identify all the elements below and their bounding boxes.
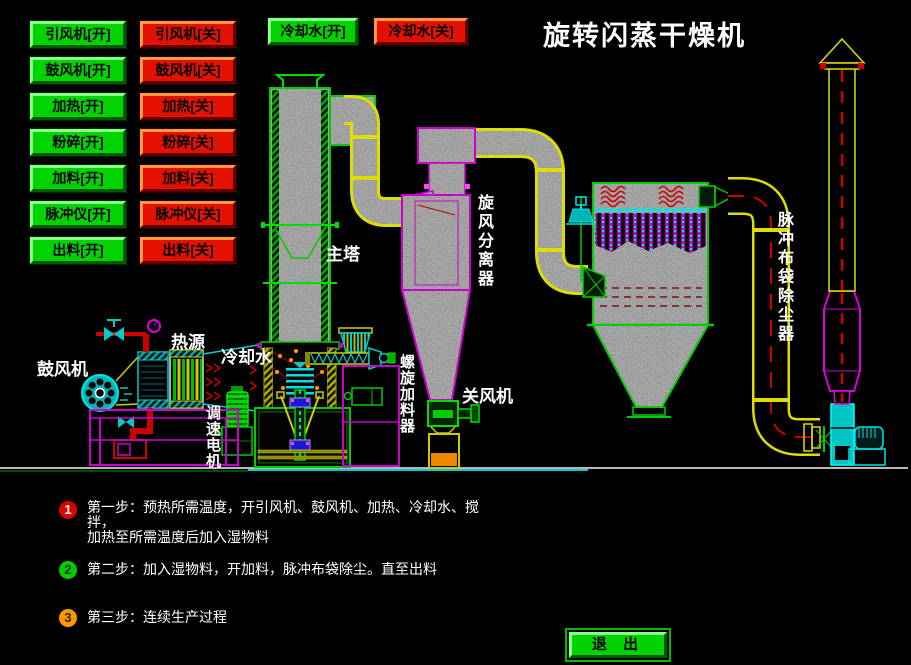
step-1-badge: 1 — [59, 501, 77, 519]
bag-filter-label: 脉冲布袋除尘器 — [778, 211, 796, 344]
heat-source-label: 热源 — [171, 328, 205, 353]
flash-dryer-scada-screen: 引风机[开] 鼓风机[开] 加热[开] 粉碎[开] 加料[开] 脉冲仪[开] 出… — [0, 0, 911, 665]
pulse-off-button[interactable]: 脉冲仪[关] — [140, 201, 236, 228]
blower-on-button[interactable]: 鼓风机[开] — [30, 57, 126, 84]
page-title: 旋转闪蒸干燥机 — [543, 14, 746, 53]
feed-on-button[interactable]: 加料[开] — [30, 165, 126, 192]
main-tower-label: 主塔 — [326, 240, 360, 265]
cooling-water-on-button[interactable]: 冷却水[开] — [268, 18, 358, 45]
exit-button[interactable]: 退 出 — [569, 632, 667, 658]
discharge-on-button[interactable]: 出料[开] — [30, 237, 126, 264]
cooling-water-label: 冷却水 — [221, 343, 272, 368]
crush-on-button[interactable]: 粉碎[开] — [30, 129, 126, 156]
speed-motor-label: 调速电机 — [206, 406, 222, 470]
blower-off-button[interactable]: 鼓风机[关] — [140, 57, 236, 84]
screw-feeder-label: 螺旋加料器 — [400, 355, 416, 435]
discharge-off-button[interactable]: 出料[关] — [140, 237, 236, 264]
cooling-water-box — [138, 352, 168, 408]
heat-source-box — [170, 350, 203, 408]
blower-fan-wheel — [82, 357, 138, 411]
step-3-badge: 3 — [59, 609, 77, 627]
collection-bin — [429, 434, 459, 468]
heat-on-button[interactable]: 加热[开] — [30, 93, 126, 120]
step-1-text: 第一步：预热所需温度，开引风机、鼓风机、加热、冷却水、搅拌， 加热至所需温度后加… — [87, 500, 485, 545]
muffler — [824, 291, 860, 404]
step-3-text: 第三步：连续生产过程 — [87, 610, 485, 625]
step-1-line1: 第一步：预热所需温度，开引风机、鼓风机、加热、冷却水、搅拌， — [87, 499, 479, 530]
step-1-line2: 加热至所需温度后加入湿物料 — [87, 530, 485, 545]
cyclone-label: 旋风分离器 — [478, 194, 496, 289]
pulse-on-button[interactable]: 脉冲仪[开] — [30, 201, 126, 228]
cooling-water-off-button[interactable]: 冷却水[关] — [374, 18, 468, 45]
feed-off-button[interactable]: 加料[关] — [140, 165, 236, 192]
step-2-badge: 2 — [59, 561, 77, 579]
pipe-tower-to-cyclone — [344, 110, 402, 212]
heat-off-button[interactable]: 加热[关] — [140, 93, 236, 120]
fan-off-button[interactable]: 引风机[关] — [140, 21, 236, 48]
fan-on-button[interactable]: 引风机[开] — [30, 21, 126, 48]
pulse-bag-filter — [566, 183, 734, 417]
exhaust-fan — [831, 404, 885, 465]
step-2-text: 第二步：加入湿物料，开加料，脉冲布袋除尘。直至出料 — [87, 562, 485, 577]
chimney — [820, 39, 864, 291]
blower-label: 鼓风机 — [37, 355, 88, 380]
crush-off-button[interactable]: 粉碎[关] — [140, 129, 236, 156]
rotary-valve-label: 关风机 — [462, 382, 513, 407]
